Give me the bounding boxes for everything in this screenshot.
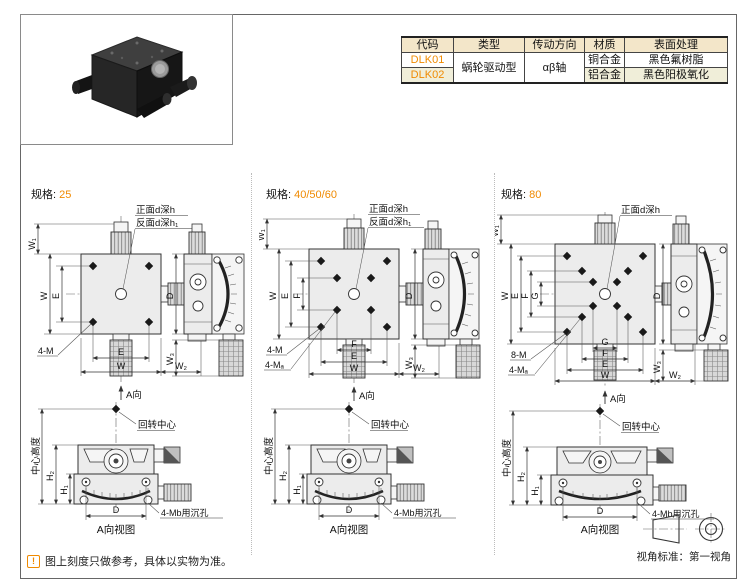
material-cell: 铝合金 [585,68,625,84]
header-code: 代码 [402,37,454,53]
annotation-rotation-center: 回转中心 [138,419,177,431]
annotation-tap: 4-M [38,346,54,356]
table-row: DLK01 蜗轮驱动型 αβ轴 铜合金 黑色氟树脂 [402,53,728,68]
dim-label: W₁ [495,225,500,237]
view-standard-label: 视角标准：第一视角 [637,549,732,564]
dim-label: W₁ [27,238,37,250]
code-cell: DLK02 [402,68,454,84]
catalog-page: 代码 类型 传动方向 材质 表面处理 DLK01 蜗轮驱动型 αβ轴 铜合金 黑… [0,0,750,585]
dim-label: E [510,293,520,299]
view-caption: A向视图 [330,523,369,536]
annotation-tap: 4-Mₐ [265,360,284,370]
annotation-counterbore: 4-Mb用沉孔 [394,508,442,518]
dim-label: G [530,292,540,299]
note-text: 图上刻度只做参考，具体以实物为准。 [45,553,232,569]
dim-label: F [351,339,357,349]
spec-label-405060: 规格: 40/50/60 [266,186,337,202]
dim-label: D [597,506,604,516]
dim-label: H₂ [278,471,288,481]
annotation-front-hole: 正面d深h [136,205,175,216]
dim-label: E [351,351,357,361]
dim-label: H₁ [292,485,302,495]
product-photo-box [20,14,233,145]
annotation-a-direction: A向 [359,390,375,402]
finish-cell: 黑色阳极氧化 [625,68,728,84]
drawing-spec-405060: 正面d深h 反面d深h₁ W₁ W E F F E W W₂ 4-M 4-Mₐ … [259,204,487,536]
dim-label: F [520,293,530,299]
annotation-tap: 4-M [267,345,283,355]
annotation-back-hole: 反面d深h₁ [136,218,178,229]
header-material: 材质 [585,37,625,53]
annotation-a-direction: A向 [126,389,142,401]
dim-label: E [280,293,290,299]
column-separator [251,173,252,555]
dim-label: W₃ [404,357,414,369]
dim-label: E [51,293,61,299]
header-direction: 传动方向 [525,37,585,53]
table-header-row: 代码 类型 传动方向 材质 表面处理 [402,37,728,53]
annotation-center-height: 中心高度 [30,437,42,476]
spec-table: 代码 类型 传动方向 材质 表面处理 DLK01 蜗轮驱动型 αβ轴 铜合金 黑… [401,36,728,84]
annotation-tap: 4-Mₐ [509,365,528,375]
dim-label: H₂ [45,471,55,481]
dim-label: W₁ [259,229,266,241]
first-angle-projection-icon [641,513,736,549]
dim-label: D [165,292,175,299]
dim-label: D [346,505,353,515]
dim-label: W₃ [652,361,662,373]
dim-label: W₂ [175,361,187,371]
page-frame: 代码 类型 传动方向 材质 表面处理 DLK01 蜗轮驱动型 αβ轴 铜合金 黑… [20,14,737,579]
dim-label: D [404,292,414,299]
material-cell: 铜合金 [585,53,625,68]
annotation-rotation-center: 回转中心 [371,419,410,431]
drawing-spec-25: 正面d深h 反面d深h₁ W₁ W E E W W₂ 4-M A向 [26,204,248,536]
annotation-center-height: 中心高度 [263,437,275,476]
type-cell: 蜗轮驱动型 [454,53,525,84]
spec-label-80: 规格: 80 [501,186,541,202]
annotation-front-hole: 正面d深h [369,204,408,215]
dim-label: W [39,291,49,300]
header-type: 类型 [454,37,525,53]
finish-cell: 黑色氟树脂 [625,53,728,68]
product-photo [52,25,202,135]
dim-label: H₁ [530,486,540,496]
footer-note: ! 图上刻度只做参考，具体以实物为准。 [27,553,232,569]
dim-label: D [113,505,120,515]
dim-label: F [602,348,608,358]
annotation-rotation-center: 回转中心 [622,421,661,433]
dim-label: W₂ [669,370,681,380]
spec-label-25: 规格: 25 [31,186,71,202]
dim-label: D [652,292,662,299]
annotation-back-hole: 反面d深h₁ [369,217,411,228]
dim-label: F [292,293,302,299]
view-caption: A向视图 [581,523,620,536]
warning-icon: ! [27,555,40,568]
drawing-spec-80: 正面d深h W₁ W E F G G F E W W₂ 8-M 4-Mₐ A向 [495,204,737,536]
dim-label: H₁ [59,485,69,495]
direction-cell: αβ轴 [525,53,585,84]
annotation-counterbore: 4-Mb用沉孔 [161,508,209,518]
dim-label: W [117,361,126,371]
annotation-tap: 8-M [511,350,527,360]
dim-label: W [500,291,510,300]
dim-label: W [350,363,359,373]
annotation-a-direction: A向 [610,393,626,405]
annotation-center-height: 中心高度 [501,439,513,478]
header-finish: 表面处理 [625,37,728,53]
dim-label: W₃ [165,353,175,365]
dim-label: G [601,337,608,347]
annotation-front-hole: 正面d深h [621,205,660,216]
code-cell: DLK01 [402,53,454,68]
dim-label: W [601,370,610,380]
dim-label: E [118,347,124,357]
view-caption: A向视图 [97,523,136,536]
dim-label: H₂ [516,472,526,482]
dim-label: W [268,291,278,300]
dim-label: E [602,359,608,369]
